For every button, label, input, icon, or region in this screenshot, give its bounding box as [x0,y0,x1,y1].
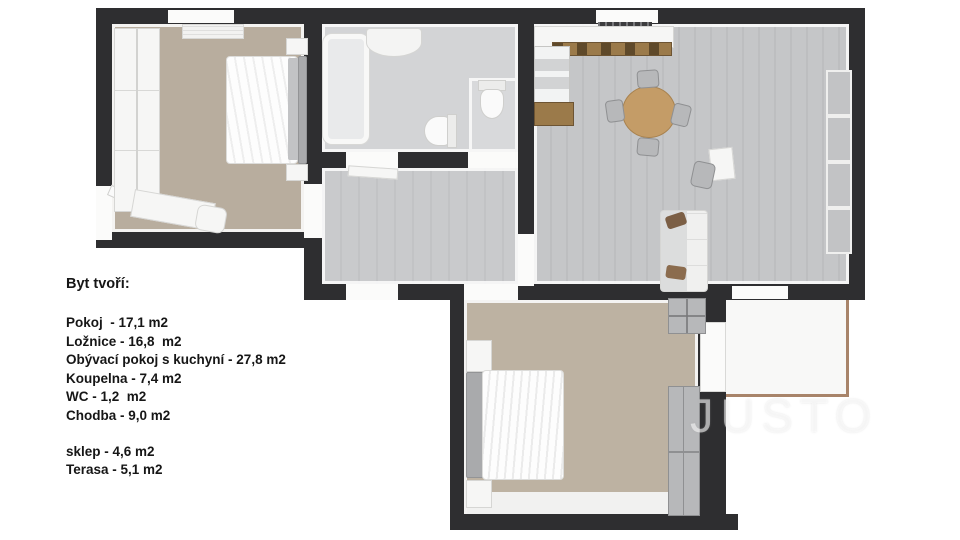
floor-plan-page: JUSTO Byt tvoří: Pokoj - 17,1 m2 Ložnice… [0,0,960,540]
legend-room-line: Ložnice - 16,8 m2 [66,333,286,352]
door-wc [468,152,518,168]
legend-room-line: Obývací pokoj s kuchyní - 27,8 m2 [66,351,286,370]
door-chodba-obyvaci [518,234,534,286]
nightstand [466,480,492,508]
wardrobe [668,298,706,334]
nightstand [286,38,308,55]
wall-segment [96,232,322,248]
room-chodba [322,168,518,284]
toilet-wc [480,89,504,119]
door-chodba-pokoj [464,284,518,300]
nightstand [286,164,308,181]
pokoj-window-ledge [467,492,695,514]
dining-chair [636,69,659,88]
bed-headboard [298,56,307,164]
legend-room-line: Terasa - 5,1 m2 [66,461,286,480]
legend-room-line: Pokoj - 17,1 m2 [66,314,286,333]
legend-room-line: Chodba - 9,0 m2 [66,407,286,426]
bathtub [323,34,369,144]
wardrobe [114,28,160,212]
window-panel [826,70,852,116]
wall-segment [450,514,738,530]
dining-table [622,86,676,138]
legend-extra-rooms: sklep - 4,6 m2 Terasa - 5,1 m2 [66,443,286,480]
entrance-door [346,284,398,300]
legend: Byt tvoří: Pokoj - 17,1 m2 Ložnice - 16,… [66,276,286,480]
legend-room-line: WC - 1,2 m2 [66,388,286,407]
window-panel [826,116,852,162]
sofa-pillow [665,265,687,281]
bed [482,370,564,480]
legend-main-rooms: Pokoj - 17,1 m2 Ložnice - 16,8 m2 Obývac… [66,314,286,426]
legend-title: Byt tvoří: [66,276,286,292]
kitchen-cabinets [552,42,672,56]
window-loznice [168,10,234,23]
radiator-loznice [182,24,244,39]
desk-chair [194,204,228,235]
room-terasa [726,300,849,397]
watermark: JUSTO [690,388,878,443]
wall-segment [450,284,464,530]
sink [366,28,422,57]
legend-room-line: Koupelna - 7,4 m2 [66,370,286,389]
window-terasa [732,286,788,299]
toilet-koupelna-tank [447,114,457,148]
door-loznice-chodba [304,184,322,238]
dining-chair [636,137,659,157]
wall-segment [304,8,865,24]
window-panel [826,208,852,254]
legend-room-line: sklep - 4,6 m2 [66,443,286,462]
window-panel [826,162,852,208]
kitchen-wood-cabinet [534,102,574,126]
fridge [534,46,570,108]
nightstand [466,340,492,372]
dining-chair [605,99,626,123]
